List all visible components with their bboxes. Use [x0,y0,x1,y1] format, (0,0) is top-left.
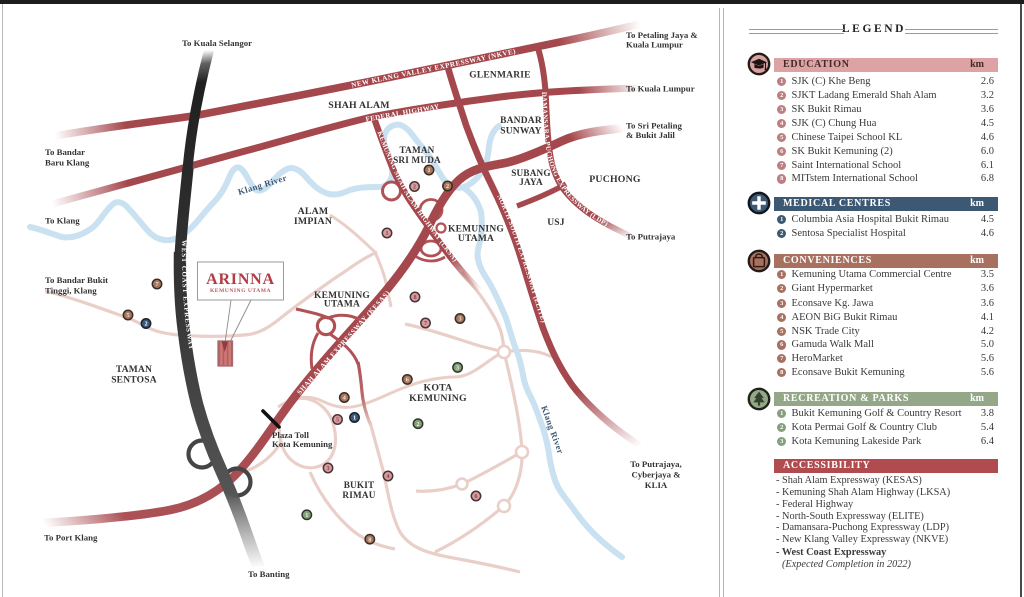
svg-text:BANDAR: BANDAR [500,116,542,126]
svg-text:Kota Kemuning: Kota Kemuning [272,439,333,449]
svg-text:To Putrajaya: To Putrajaya [626,232,676,242]
svg-text:7: 7 [424,320,427,327]
svg-text:1: 1 [353,415,356,422]
svg-text:3: 3 [456,365,459,372]
svg-text:8: 8 [413,294,416,301]
svg-text:1: 1 [385,230,388,237]
svg-text:5: 5 [126,312,129,319]
svg-text:PUCHONG: PUCHONG [589,174,641,185]
svg-text:4: 4 [386,473,389,480]
svg-text:UTAMA: UTAMA [458,234,494,244]
svg-text:1: 1 [427,167,430,174]
svg-text:KEMUNING: KEMUNING [448,225,504,235]
svg-text:To Sri Petaling: To Sri Petaling [626,121,682,131]
svg-text:To Klang: To Klang [45,216,80,226]
svg-text:To Kuala Lumpur: To Kuala Lumpur [626,84,695,94]
svg-text:DAMANSARA-PUCHONG EXPRESSWAY (: DAMANSARA-PUCHONG EXPRESSWAY (LDP) [540,92,609,228]
svg-text:2: 2 [416,421,419,428]
svg-text:8: 8 [368,536,371,543]
svg-text:To Bandar Bukit: To Bandar Bukit [45,275,108,285]
svg-text:JAYA: JAYA [519,177,543,187]
svg-text:KEMUNING: KEMUNING [409,393,467,404]
svg-text:KLIA: KLIA [645,480,668,490]
svg-text:BUKIT: BUKIT [344,480,375,490]
svg-text:1: 1 [305,512,308,519]
svg-text:TAMAN: TAMAN [116,365,152,375]
svg-text:Baru Klang: Baru Klang [45,158,90,168]
svg-text:5: 5 [336,417,339,424]
svg-text:3: 3 [326,465,329,472]
svg-text:ARINNA: ARINNA [206,271,275,288]
svg-text:6: 6 [474,493,477,500]
svg-text:IMPIAN: IMPIAN [294,216,332,227]
svg-text:2: 2 [413,184,416,191]
svg-text:SRI MUDA: SRI MUDA [393,155,441,165]
svg-text:To Putrajaya,: To Putrajaya, [630,459,681,469]
svg-text:3: 3 [458,316,461,323]
svg-text:4: 4 [343,395,346,402]
svg-text:To Kuala Selangor: To Kuala Selangor [182,38,252,48]
svg-text:2: 2 [144,321,147,328]
svg-text:USJ: USJ [547,218,565,228]
svg-text:To Bandar: To Bandar [45,147,85,157]
svg-text:Cyberjaya &: Cyberjaya & [631,470,680,480]
svg-text:To Port Klang: To Port Klang [44,533,98,543]
svg-text:TAMAN: TAMAN [399,145,434,155]
svg-text:UTAMA: UTAMA [324,300,360,310]
svg-text:GLENMARIE: GLENMARIE [469,71,530,81]
svg-text:2: 2 [446,183,449,190]
svg-text:KEMUNING UTAMA: KEMUNING UTAMA [210,288,271,294]
svg-text:Tinggi, Klang: Tinggi, Klang [45,286,97,296]
svg-text:SHAH ALAM: SHAH ALAM [328,100,389,111]
svg-text:6: 6 [406,377,409,384]
svg-text:7: 7 [155,281,158,288]
svg-text:To Banting: To Banting [248,569,290,579]
svg-text:SUNWAY: SUNWAY [500,127,542,137]
svg-text:& Bukit Jalil: & Bukit Jalil [626,130,675,140]
svg-text:KOTA: KOTA [424,383,453,394]
svg-text:To Petaling Jaya &: To Petaling Jaya & [626,30,698,40]
svg-text:SENTOSA: SENTOSA [111,376,157,386]
svg-text:Kuala Lumpur: Kuala Lumpur [626,40,683,50]
svg-text:RIMAU: RIMAU [342,490,375,500]
svg-text:NEW KLANG VALLEY EXPRESSWAY (N: NEW KLANG VALLEY EXPRESSWAY (NKVE) [351,47,517,89]
